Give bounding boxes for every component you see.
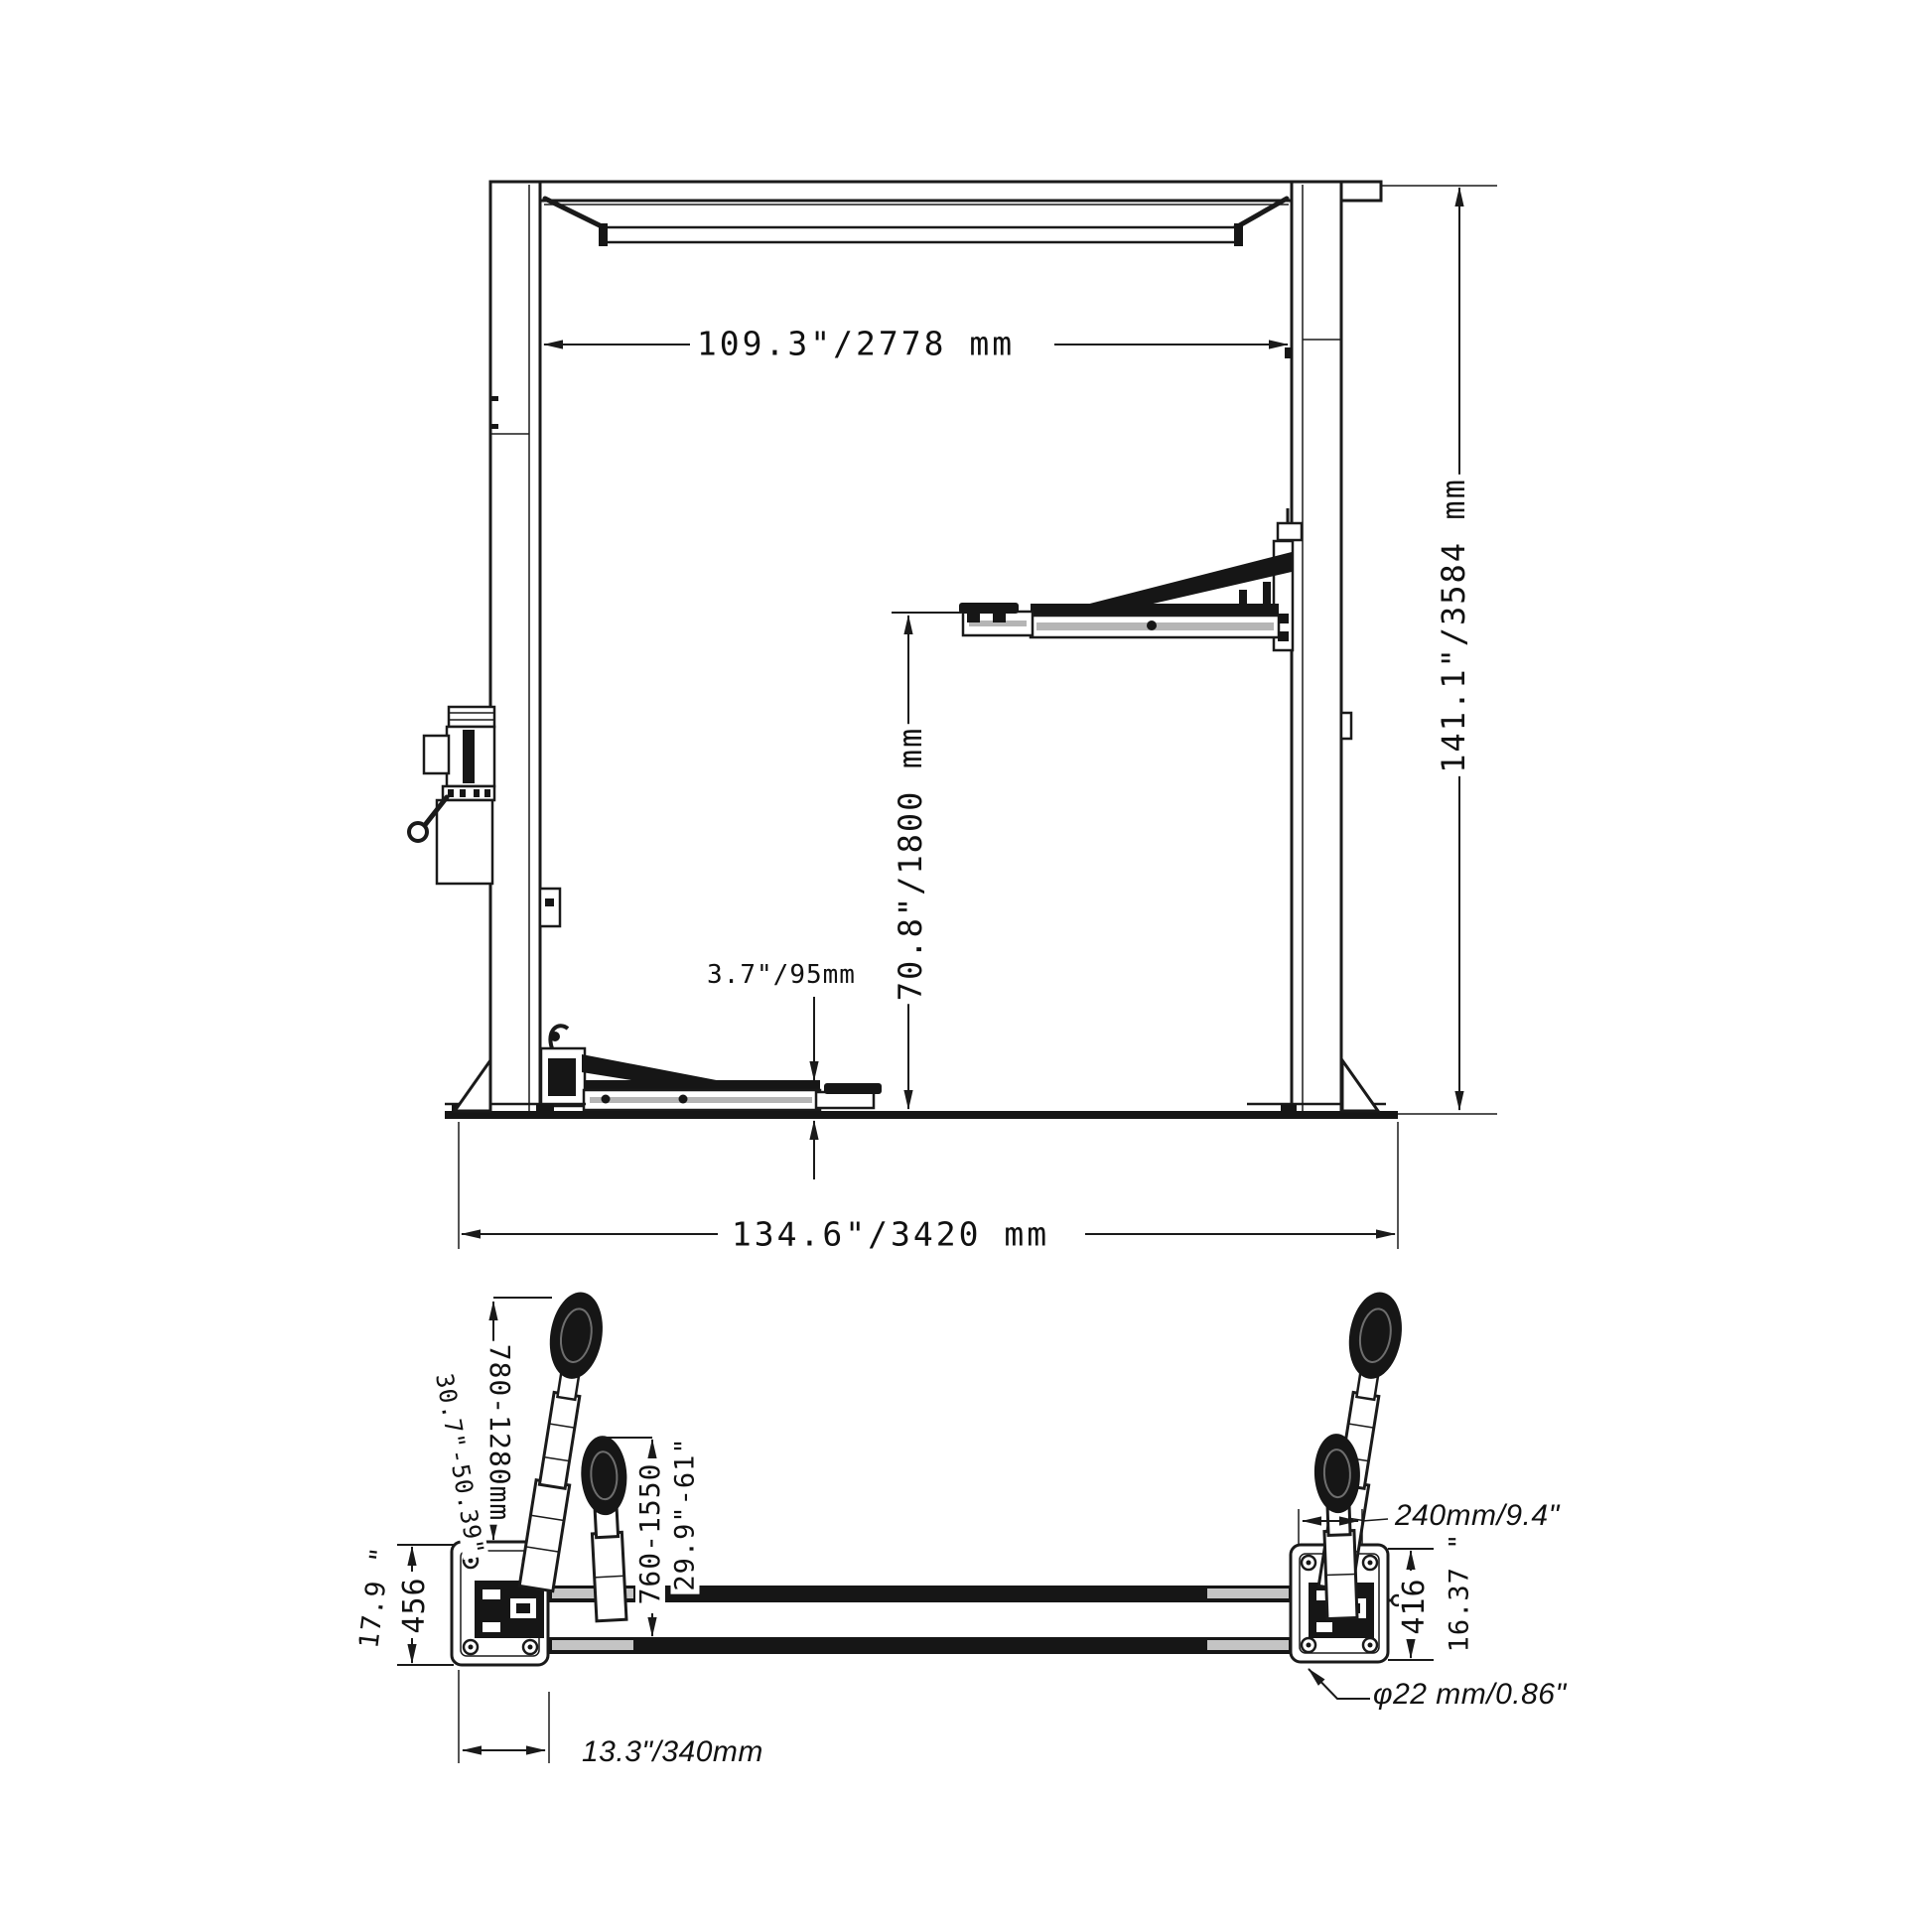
dim-label-arm-range-short-mm: 760-1550	[635, 1460, 665, 1608]
drawing-canvas	[0, 0, 1932, 1932]
dim-label-carriage-width: 240mm/9.4"	[1392, 1500, 1563, 1532]
dim-label-total-height: 141.1"/3584 mm	[1437, 475, 1470, 776]
dim-label-right-plate-in: 16.37 "	[1446, 1530, 1474, 1656]
left-column	[490, 182, 560, 1114]
dim-label-right-plate-mm: 416	[1399, 1575, 1431, 1637]
two-post-lift-dimension-drawing: 109.3"/2778 mm 141.1"/3584 mm 70.8"/1800…	[0, 0, 1932, 1932]
overhead-safety-bar	[514, 199, 1317, 246]
dim-label-lift-height: 70.8"/1800 mm	[894, 724, 927, 1004]
rubber-pad	[544, 1289, 609, 1383]
dim-label-left-plate-mm: 456	[399, 1574, 431, 1636]
arm-pad	[959, 603, 1019, 614]
rubber-pad	[579, 1435, 628, 1516]
rubber-pad	[1343, 1289, 1408, 1383]
dim-label-min-pad-height: 3.7"/95mm	[704, 961, 859, 989]
dim-label-plate-width: 13.3"/340mm	[579, 1736, 766, 1768]
dim-label-top-width: 109.3"/2778 mm	[694, 327, 1018, 361]
dim-label-arm-range-long-mm: 780-1280mm	[484, 1341, 514, 1525]
motor-power-unit	[409, 707, 494, 884]
raised-lift-arm	[959, 508, 1302, 650]
plan-view	[397, 1289, 1434, 1763]
arm-pad	[824, 1083, 882, 1094]
dim-label-arm-range-short-in: 29.9"-61"	[671, 1434, 700, 1593]
lowered-lift-arm	[541, 1026, 882, 1110]
right-column	[1285, 182, 1351, 1114]
top-beam	[490, 182, 1497, 205]
dim-label-anchor-bolt: φ22 mm/0.86"	[1370, 1679, 1570, 1711]
floor-line	[445, 1111, 1398, 1119]
dim-label-base-width: 134.6"/3420 mm	[729, 1217, 1052, 1252]
